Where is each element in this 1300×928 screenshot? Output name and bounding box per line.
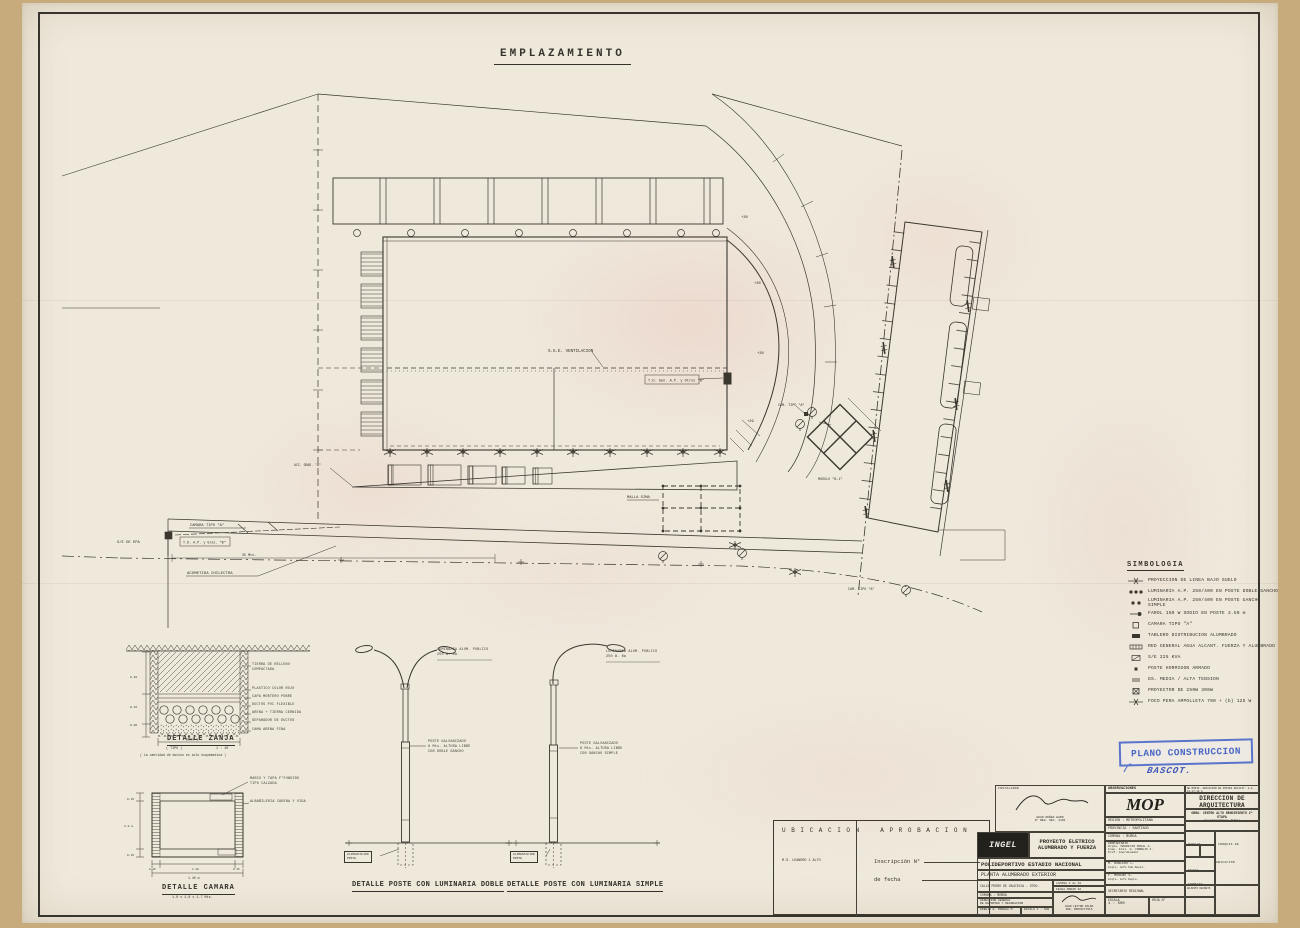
legend-label: CAMARA TIPO "A" — [1148, 622, 1192, 627]
zanja-sub-escala: 1 : 10 — [216, 747, 228, 751]
site-boundaries — [62, 94, 1005, 628]
firma1-cargo: Arqto. Jefe Sub-Depto. — [1108, 866, 1184, 869]
observaciones-cell: OBSERVACIONES — [1105, 785, 1185, 793]
label-elev-1: +30 — [741, 216, 749, 220]
stamp-signature: BASCOT. — [1146, 766, 1193, 776]
dibujo-valor: E. MORAGA M. — [993, 908, 1015, 911]
dim-camara-l3: 0.15 — [127, 854, 134, 857]
camara-sub: 1.0 x 1.0 x 1.7 Mts. — [172, 896, 213, 900]
inscripcion-label: Inscripción N° — [874, 858, 920, 865]
label-modulo: MODULO "B-1" — [818, 477, 842, 482]
obra-cell: OBRA: CENTRO ALTO RENDIMIENTO 2ª ETAPA P… — [1185, 809, 1259, 821]
label-camara-tipo-a: CAMARA TIPO "A" — [190, 523, 224, 528]
subestacion-icon — [1127, 654, 1144, 662]
parking-area — [862, 222, 989, 556]
tablero-icon — [1127, 632, 1144, 640]
poste-doble-lum-callout-2: 250 W. Na — [437, 653, 495, 658]
croquis-empty-cell — [1215, 885, 1259, 915]
legend-item: CAMARA TIPO "A" — [1127, 619, 1279, 630]
label-acometida: ACOMETIDA CHILECTRA — [187, 572, 233, 576]
dibujo2-cell: DIBUJO — [1185, 831, 1215, 845]
escala-label: ESCALA — [1024, 908, 1035, 911]
legend-item: LUMINARIA A.P. 250/400 EN POSTE GANCHO S… — [1127, 597, 1279, 608]
label-se-epa: S/E DE EPA — [117, 540, 141, 545]
dim-camara-b1: 0.15 — [149, 868, 156, 871]
dim-zanja-h2: 0.15 — [130, 706, 137, 709]
poste-hormigon-icon — [1127, 665, 1144, 673]
legend-item: PROYECTOR DE 250W 300W — [1127, 685, 1279, 696]
approval-box: U B I C A C I O N M.S. LEANDRO 1 ALTO A … — [773, 820, 990, 915]
alim-line-2: POSTE — [513, 857, 535, 861]
region-cell: REGION : METROPOLITANA — [1105, 817, 1185, 825]
calco-cell: CALCO — [1200, 845, 1215, 857]
proyector-icon — [1127, 687, 1144, 695]
direccion-line-1: DIRECCION DE ARQUITECTURA — [1186, 795, 1258, 809]
plano-construccion-stamp: PLANO CONSTRUCCION — [1119, 738, 1254, 766]
legend-item: DS. MEDIA / ALTA TENSION — [1127, 674, 1279, 685]
observaciones-texto-cell: SE MODIF. UBICACION DE POSTES SOLICIT. 1… — [1185, 785, 1259, 793]
hoja-cell: HOJA N° — [1149, 897, 1185, 915]
service-feed — [165, 522, 495, 576]
obra-line-1: OBRA: CENTRO ALTO RENDIMIENTO 2ª ETAPA — [1186, 811, 1258, 819]
legend-label: PROYECCION DE LINEA BAJO SUELO — [1148, 578, 1237, 583]
dim-camara-total: 1.40 m — [188, 876, 200, 880]
instalador-reg: N° REG. SEC. 1436 — [996, 819, 1104, 822]
zanja-callout-cama: CAMA ARENA FINA — [252, 728, 314, 733]
zanja-callout-plastico: PLASTICO COLOR ROJO — [252, 687, 314, 692]
escala2-cell: ESCALA 1 : 500 — [1105, 897, 1149, 915]
label-td-ap: T.D. A.P. y Gral. "B" — [183, 541, 226, 546]
firma2-cell: F. MORENO S. Arqto. Jefe Depto. — [1105, 873, 1185, 885]
mandante-line-2: DE DEPORTES Y RECREACION — [980, 902, 1052, 905]
legend-label: LUMINARIA A.P. 250/400 EN POSTE DOBLE GA… — [1148, 589, 1278, 594]
poste-doble-title: DETALLE POSTE CON LUMINARIA DOBLE — [352, 881, 504, 892]
dibujo-cell: DIBUJO E. MORAGA M. — [977, 907, 1021, 915]
proyectista-cell: JUAN LEYTON PALMA ING. PROYECTISTA — [1053, 892, 1105, 915]
label-tablero-b: T.D. Gen. A.P. y Otros "B" — [648, 379, 704, 384]
title-block: INSTALADOR HUGO NUÑEZ HARO N° REG. SEC. … — [977, 785, 1259, 915]
escala-cell: ESCALA 1 : 500 — [1021, 907, 1053, 915]
poste-simple-title: DETALLE POSTE CON LUMINARIA SIMPLE — [507, 881, 663, 892]
aprobacion-title: A P R O B A C I O N — [864, 827, 984, 835]
fecha-line: de fecha — [874, 875, 978, 884]
detail-poste-doble-drawing — [345, 644, 519, 868]
proyecto-line-2: ALUMBRADO Y FUERZA — [1030, 845, 1104, 851]
approval-divider — [856, 821, 857, 916]
zanja-callout-arena: ARENA + TIERRA CERNIDA — [252, 711, 314, 716]
dim-zanja-h3: 0.05 — [130, 724, 137, 727]
comuna2-cell: COMUNA : ÑUÑOA — [1105, 833, 1185, 841]
adjunto-cell: ADJUNTO DECRETO — [1185, 885, 1215, 897]
plano-cell: PLANO EMPLAZAMIENTO — [1185, 821, 1259, 831]
legend-label: LUMINARIA A.P. 250/400 EN POSTE GANCHO S… — [1148, 598, 1279, 608]
legend-item: FAROL 150 W SODIO EN POSTE 3.50 m — [1127, 608, 1279, 619]
legend-item: RED GENERAL AGUA ALCANT. FUERZA Y ALUMBR… — [1127, 641, 1279, 652]
proyectista-cargo: ING. PROYECTISTA — [1054, 908, 1104, 911]
zanja-callout-mortero: CAPA MORTERO POBRE — [252, 695, 314, 700]
scanned-drawing-sheet: S.G.E. VENTILACION T.D. Gen. A.P. y Otro… — [0, 0, 1300, 928]
inscripcion-line: Inscripción N° — [874, 857, 980, 866]
legend-label: RED GENERAL AGUA ALCANT. FUERZA Y ALUMBR… — [1148, 644, 1275, 649]
legend-item: LUMINARIA A.P. 250/400 EN POSTE DOBLE GA… — [1127, 586, 1279, 597]
poste-doble-alim-callout: ALIMENTACION POSTE — [344, 851, 372, 863]
propietario-line-3: Prof. Coordinador — [1108, 851, 1184, 854]
instalador-signature — [996, 790, 1104, 816]
ingel-logo: INGEL — [978, 833, 1028, 857]
alim-line-2: POSTE — [347, 857, 369, 861]
projection-line-icon — [1127, 577, 1144, 585]
diamond-structure — [796, 398, 882, 470]
label-sge-ventilacion: S.G.E. VENTILACION — [548, 350, 594, 354]
firma3-cell: SECRETARIO REGIONAL — [1105, 885, 1185, 897]
firma1-cell: M. ROBLERO C. Arqto. Jefe Sub-Depto. — [1105, 861, 1185, 873]
label-malla-sima: MALLA SIMA — [627, 496, 651, 500]
detail-camara-drawing — [136, 782, 249, 877]
right-empty-cell — [1185, 897, 1215, 915]
drawing-title: EMPLAZAMIENTO — [494, 48, 631, 65]
legend-item: FOCO PERA AMPOLLETA 700 + (b) 125 W — [1127, 696, 1279, 707]
dim-camara-l2: 1.0 m — [124, 825, 133, 828]
dim-camara-b2: 1.10 — [192, 868, 199, 871]
camara-title: DETALLE CAMARA — [162, 884, 235, 895]
label-35-mts: 35 Mts. — [242, 554, 256, 558]
legend-simbologia: SIMBOLOGIA PROYECCION DE LINEA BAJO SUEL… — [1127, 553, 1279, 707]
luminaria-doble-icon — [1127, 588, 1144, 596]
luminaria-simple-icon — [1127, 599, 1144, 607]
label-cam-tipo-a-2: CAM. TIPO "A" — [848, 587, 874, 592]
foco-pera-icon — [1127, 698, 1144, 706]
zanja-callout-ductos: DUCTOS PVC FLEXIBLE — [252, 703, 314, 708]
lamina2-cell: LAMINA — [1185, 845, 1200, 857]
escala-valor: 1 : 500 — [1037, 908, 1050, 911]
label-elev-4: +29 — [747, 420, 755, 424]
ingel-logo-cell: INGEL — [977, 832, 1029, 858]
label-acc-grad: ACC. GRAD. "A" — [294, 463, 321, 467]
legend-label: S/E 225 KVA — [1148, 655, 1181, 660]
escala2-valor: 1 : 500 — [1108, 902, 1148, 906]
plano-nombre-cell: PLANTA ALUMBRADO EXTERIOR — [977, 870, 1105, 880]
fecha-blank — [922, 875, 978, 881]
mandante-cell: DIRECCION GENERAL DE DEPORTES Y RECREACI… — [977, 898, 1053, 907]
formato-cell: FORMATO A - 0 — [1185, 871, 1215, 885]
legend-label: FOCO PERA AMPOLLETA 700 + (b) 125 W — [1148, 699, 1251, 704]
poste-simple-lum-callout-2: 250 W. Na — [606, 655, 664, 660]
ubicacion-title: U B I C A C I O N — [782, 827, 848, 835]
provincia-cell: PROVINCIA : SANTIAGO — [1105, 825, 1185, 833]
dibujo-label: DIBUJO — [980, 908, 991, 911]
building-outline — [330, 178, 789, 532]
proyectista-signature — [1054, 893, 1104, 905]
inscripcion-blank — [924, 857, 980, 863]
instalador-cell: INSTALADOR HUGO NUÑEZ HARO N° REG. SEC. … — [995, 785, 1105, 832]
farol-icon — [1127, 610, 1144, 618]
legend-item: TABLERO DISTRIBUCION ALUMBRADO — [1127, 630, 1279, 641]
legend-label: TABLERO DISTRIBUCION ALUMBRADO — [1148, 633, 1237, 638]
tension-icon — [1127, 676, 1144, 684]
zanja-callout-relleno: TIERRA DE RELLENO COMPACTADA — [252, 663, 314, 673]
poste-simple-callout-3: CON GANCHO SIMPLE — [580, 752, 638, 757]
camara-callout-marco-2: TIPO CALZADA — [250, 782, 312, 787]
camara-icon — [1127, 621, 1144, 629]
legend-label: FAROL 150 W SODIO EN POSTE 3.50 m — [1148, 611, 1246, 616]
croquis-cell: CROQUIS DE UBICACION — [1215, 831, 1259, 885]
fecha2-cell: FECHA MARZO 92 — [1185, 857, 1215, 871]
croquis-label: CROQUIS DE UBICACION — [1216, 842, 1239, 864]
plan-labels: S.G.E. VENTILACION T.D. Gen. A.P. y Otro… — [117, 216, 874, 880]
dim-camara-l1: 0.15 — [127, 798, 134, 801]
mop-logo: MOP — [1126, 795, 1164, 815]
zanja-callout-separador: SEPARADOR DE DUCTOS — [252, 719, 314, 724]
propietario-cell: PROPIETARIO Arqto. MAURICIO SOVAL A. Ins… — [1105, 841, 1185, 861]
legend-title: SIMBOLOGIA — [1127, 561, 1184, 571]
label-elev-2: +30 — [754, 282, 762, 286]
label-cam-tipo-a-1: CAM. TIPO "A" — [778, 403, 804, 408]
legend-item: S/E 225 KVA — [1127, 652, 1279, 663]
ubicacion-note: M.S. LEANDRO 1 ALTO — [782, 859, 821, 863]
stamp-text: PLANO CONSTRUCCION — [1131, 746, 1241, 760]
poste-simple-alim-callout: ALIMENTACION POSTE — [510, 851, 538, 863]
mop-logo-cell: MOP — [1105, 793, 1185, 817]
camara-callout-albanileria: ALBAÑILERIA CADENA Y VIGA — [250, 800, 312, 805]
legend-label: PROYECTOR DE 250W 300W — [1148, 688, 1213, 693]
zanja-sub-tipo: ( TIPO ) — [166, 747, 182, 751]
label-elev-3: +30 — [757, 352, 765, 356]
obra-nombre-cell: POLIDEPORTIVO ESTADIO NACIONAL — [977, 858, 1105, 870]
firma2-cargo: Arqto. Jefe Depto. — [1108, 878, 1184, 881]
dim-camara-b3: 0.15 — [233, 868, 240, 871]
legend-item: POSTE HORMIGON ARMADO — [1127, 663, 1279, 674]
zanja-title: DETALLE ZANJA — [167, 735, 235, 746]
legend-label: DS. MEDIA / ALTA TENSION — [1148, 677, 1219, 682]
legend-label: POSTE HORMIGON ARMADO — [1148, 666, 1210, 671]
dim-zanja-h1: 0.40 — [130, 676, 137, 679]
poste-doble-callout-3: CON DOBLE GANCHO — [428, 750, 486, 755]
calle-cell: CALLE PEDRO DE VALDIVIA - STGO. — [977, 880, 1053, 892]
proyecto-cell: PROYECTO ELETRICO ALUMBRADO Y FUERZA — [1029, 832, 1105, 858]
fecha-label: de fecha — [874, 876, 900, 883]
direccion-cell: DIRECCION DE ARQUITECTURA DEPARTAMENTO D… — [1185, 793, 1259, 809]
zanja-note: ( La cantidad de ductos es solo esquemat… — [140, 753, 226, 757]
legend-item: PROYECCION DE LINEA BAJO SUELO — [1127, 575, 1279, 586]
red-general-icon — [1127, 643, 1144, 651]
